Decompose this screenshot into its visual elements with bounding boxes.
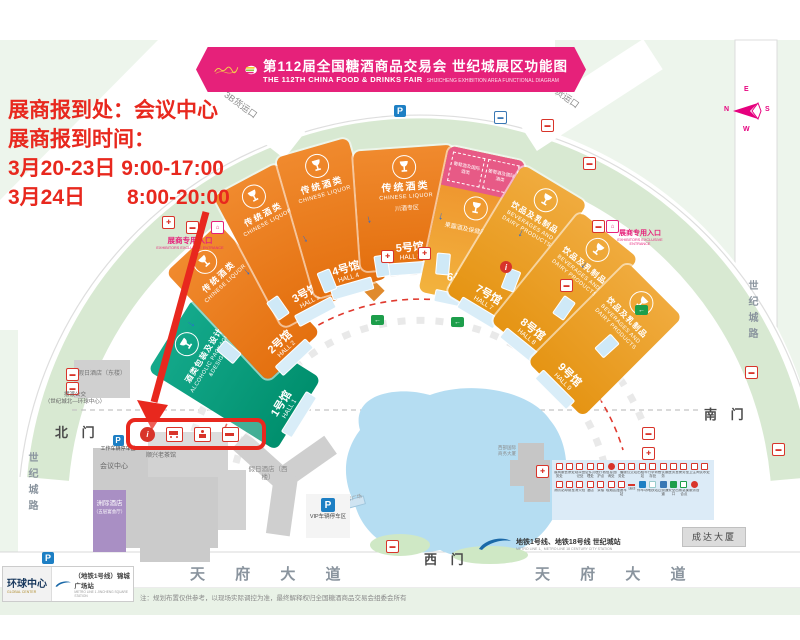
hall-connector: [435, 252, 451, 275]
legend-icon: [587, 463, 594, 470]
chengda-label: 成达大厦: [692, 532, 736, 542]
bus-stop-icon: ▬: [66, 368, 79, 381]
medical-icon: ✚: [381, 250, 394, 263]
legend-row-2: 消防站 母婴室 消火栓 酒店 茶楼 吸烟区 摆渡车站 围挡 停车场 地铁站: [554, 481, 712, 499]
wine-glass-icon: [462, 194, 490, 222]
legend-icon: [556, 481, 563, 488]
parking-icon: P: [42, 552, 54, 564]
legend-item: 展商服务处: [554, 463, 564, 479]
chengda-building: 成达大厦: [682, 527, 746, 547]
legend-label: 酒店: [585, 489, 596, 497]
legend-label: 医务室: [668, 471, 679, 479]
vip-parking: P VIP车辆停车区: [306, 494, 350, 538]
legend-item: 医疗救护点: [596, 463, 606, 479]
legend-label: 广播服务处: [616, 471, 627, 479]
banner-title-en: THE 112TH CHINA FOOD & DRINKS FAIR: [263, 75, 423, 84]
bus-stop-icon: ▬: [186, 221, 199, 234]
tianfu-avenue-label-right: 天 府 大 道: [535, 563, 699, 584]
legend-icon: [566, 463, 573, 470]
metro-logo-icon: [478, 536, 512, 552]
legend-label: 地铁站: [647, 489, 658, 497]
north-gate-label: 北 门: [55, 422, 100, 441]
title-banner: 第112届全国糖酒商品交易会 世纪城展区功能图 THE 112TH CHINA …: [196, 47, 586, 92]
metro-station-1-en: METRO LINE 1 JINCHENG SQUARE STATION: [74, 590, 130, 598]
legend-item: 餐饮服务: [658, 463, 668, 479]
legend-icon: [691, 463, 698, 470]
legend-item: 过街通道: [658, 481, 668, 497]
intercontinental-hotel-building: 洲际酒店 （五层宴会厅）: [93, 490, 126, 552]
compass-n: N: [724, 106, 729, 113]
legend-icon: [608, 463, 615, 470]
legend-icon: [639, 481, 646, 488]
banner-subtitle-en: SHIJICHENG EXHIBITION AREA FUNCTIONAL DI…: [427, 78, 559, 84]
bus-stop-icon: ▬: [592, 220, 605, 233]
legend-item: 证件办理处: [585, 463, 595, 479]
legend-label: 吸烟区: [606, 489, 617, 497]
legend-label: 服务台: [689, 489, 700, 497]
legend-label: 卫生间: [689, 471, 700, 479]
parking-icon: P: [394, 105, 406, 117]
legend-item: 观众登记处: [575, 463, 585, 479]
legend-item: 吸烟区: [606, 481, 616, 497]
legend-label: 医疗救护点: [595, 471, 606, 479]
west-gate-label: 西 门: [424, 549, 469, 568]
legend-item: 地铁站: [648, 481, 658, 497]
bus-stop-icon: ▬: [642, 427, 655, 440]
tianfu-avenue-label-left: 天 府 大 道: [190, 563, 354, 584]
legend-label: 售票处: [564, 471, 575, 479]
legend-item: 警务室: [679, 463, 689, 479]
legend-label: 观众登记处: [574, 471, 585, 479]
compass-rose: E N S W: [722, 86, 772, 136]
business-tower-c: [524, 482, 550, 502]
legend-label: 信息咨询处: [606, 471, 617, 479]
legend-item: 医务室: [668, 463, 678, 479]
legend-icon: [649, 481, 656, 488]
legend-icon: [628, 463, 635, 470]
legend-icon: [597, 463, 604, 470]
legend-label: 茶楼: [595, 489, 606, 497]
map-legend: 展商服务处 售票处 观众登记处 证件办理处 医疗救护点 信息咨询处 广播服务处 …: [552, 460, 714, 520]
legend-label: 消防站: [554, 489, 565, 497]
service-desk-icon: [222, 427, 239, 442]
conference-center-label: 会议中心: [100, 461, 128, 471]
legend-icon: [576, 481, 583, 488]
legend-icon: [576, 463, 583, 470]
legend-item: 消火栓: [575, 481, 585, 497]
legend-icon: [670, 481, 677, 488]
disclaimer-note: 注：规划布置仅供参考，以现场实际调控为准，最终解释权归全国糖酒商品交易会组委会所…: [140, 592, 407, 602]
metro-station-2-cn: 地铁1号线、地铁18号线 世纪城站: [516, 537, 621, 547]
metro-station-1-cn: （地铁1号线）锦城广场站: [74, 570, 130, 590]
legend-item: 母婴室: [564, 481, 574, 497]
legend-item: 安全出口: [668, 481, 678, 497]
exit-icon: ←: [451, 317, 464, 327]
intercontinental-label: 洲际酒店: [97, 500, 123, 507]
legend-icon: [618, 463, 625, 470]
annotation-line-2: 展商报到时间：: [8, 125, 308, 154]
bus-stop-icon: ▬: [386, 540, 399, 553]
intercontinental-sub-label: （五层宴会厅）: [94, 509, 126, 514]
legend-item: 卫生间: [689, 463, 699, 479]
bus-stop-icon: ▬: [560, 279, 573, 292]
bus-stop-icon: ▬: [745, 366, 758, 379]
legend-label: 母婴室: [564, 489, 575, 497]
legend-item: 摆渡车站: [616, 481, 626, 497]
legend-label: 警务室: [678, 471, 689, 479]
shijicheng-road-label-right: 世纪城路: [744, 280, 759, 344]
direction-arrow-icon: →: [435, 210, 447, 222]
teahouse-label: 顺兴老茶馆: [146, 450, 176, 459]
legend-icon: [680, 463, 687, 470]
wine-zone-box-1: 葡萄酒及国际酒类: [447, 151, 485, 187]
compass-w: W: [743, 126, 750, 133]
compass-s: S: [765, 106, 770, 113]
legend-icon: [670, 463, 677, 470]
badge-icon: [194, 427, 211, 442]
legend-label: 证件办理处: [585, 471, 596, 479]
compass-arrow-icon: [732, 99, 762, 123]
legend-item: 服务台: [689, 481, 699, 497]
banner-title: 第112届全国糖酒商品交易会 世纪城展区功能图: [263, 55, 568, 75]
legend-icon: [639, 463, 646, 470]
legend-item: 公交站: [627, 463, 637, 479]
legend-icon: [556, 463, 563, 470]
shuttle-icon: [166, 427, 183, 442]
annotation-line-4: 3月24日 8:00-20:00: [8, 183, 308, 212]
legend-label: 紧急集合点: [678, 489, 689, 497]
legend-label: 餐饮服务: [658, 471, 669, 479]
compass-e: E: [744, 86, 749, 93]
bus-stop-icon: ▬: [772, 443, 785, 456]
exhibitor-entrance-right: 展商专用入口 EXHIBITORS EXCLUSIVE ENTRANCE: [612, 228, 668, 246]
global-center-label-en: GLOBAL CENTER: [7, 590, 47, 594]
legend-icon: [618, 481, 625, 488]
bus-stop-icon: ▬: [541, 119, 554, 132]
legend-item: 行李寄存处: [648, 463, 658, 479]
legend-icon: [597, 481, 604, 488]
legend-label: 行李寄存处: [647, 471, 658, 479]
legend-label: 饮水处: [699, 471, 710, 479]
parking-icon: P: [113, 435, 124, 446]
exhibitor-entrance-left: 展商专用入口 EXHIBITORS EXCLUSIVE ENTRANCE: [150, 235, 230, 250]
annotation-line-3: 3月20-23日 9:00-17:00: [8, 154, 308, 183]
holiday-east-label: 假日酒店（东楼）: [78, 371, 126, 377]
legend-item: 酒店: [585, 481, 595, 497]
legend-label: 安全出口: [668, 489, 679, 497]
info-icon: i: [140, 427, 155, 442]
south-gate-label: 南 门: [704, 404, 749, 423]
fair-logo-icon: [245, 57, 257, 83]
legend-icon: [587, 481, 594, 488]
legend-icon: [566, 481, 573, 488]
legend-icon: [680, 481, 687, 488]
conference-step-building: [140, 548, 210, 562]
hall-5-zone: 川酒专区: [395, 204, 420, 214]
registration-highlight-box: i: [126, 418, 266, 450]
legend-label: 摆渡车站: [616, 489, 627, 497]
wine-glass-icon: [391, 154, 417, 180]
holiday-west-label: 假日酒店（西楼）: [246, 466, 290, 482]
annotation-line-1: 展商报到处：会议中心: [8, 96, 308, 125]
medical-icon: ✚: [162, 216, 175, 229]
calligraphy-logo: [214, 59, 239, 81]
legend-item: 信息咨询处: [606, 463, 616, 479]
legend-icon: [660, 481, 667, 488]
global-center-bar: 环球中心 GLOBAL CENTER （地铁1号线）锦城广场站 METRO LI…: [2, 566, 134, 602]
legend-item: 停车场: [637, 481, 647, 497]
medical-icon: ✚: [642, 447, 655, 460]
exit-icon: ←: [635, 305, 648, 315]
legend-icon: [701, 463, 708, 470]
legend-label: 公交站: [626, 471, 637, 479]
legend-icon: [691, 481, 698, 488]
legend-row-1: 展商服务处 售票处 观众登记处 证件办理处 医疗救护点 信息咨询处 广播服务处 …: [554, 463, 712, 481]
legend-label: 出租车站: [637, 471, 648, 479]
bus-shelter-icon: ▬: [494, 111, 507, 124]
legend-item: 售票处: [564, 463, 574, 479]
business-tower-label: 西部国际商务大厦: [496, 445, 518, 456]
legend-label: 停车场: [637, 489, 648, 497]
metro-logo-icon: [55, 578, 71, 590]
metro-station-2-en: METRO LINE 1、METRO LINE 18 CENTURY CITY …: [516, 547, 621, 552]
legend-icon: [649, 463, 656, 470]
registration-annotation: 展商报到处：会议中心 展商报到时间： 3月20-23日 9:00-17:00 3…: [8, 96, 308, 212]
entrance-icon: ⌂: [211, 221, 224, 234]
exit-icon: ←: [371, 315, 384, 325]
metro-station-2: 地铁1号线、地铁18号线 世纪城站 METRO LINE 1、METRO LIN…: [478, 536, 621, 552]
legend-label: 围挡: [626, 487, 637, 495]
venue-map-page: { "banner": { "title_cn": "第112届全国糖酒商品交易…: [0, 0, 800, 640]
legend-item: 消防站: [554, 481, 564, 497]
parking-icon: P: [321, 498, 335, 512]
legend-item: 围挡: [627, 481, 637, 497]
shijicheng-road-label-left: 世纪城路: [24, 452, 39, 516]
medical-icon: ✚: [418, 247, 431, 260]
legend-icon: [608, 481, 615, 488]
shuttle-bus-label: 摆渡公交（世纪城北—环球中心）: [42, 392, 108, 406]
legend-icon: [628, 484, 635, 486]
bus-stop-icon: ▬: [583, 157, 596, 170]
medical-icon: ✚: [536, 465, 549, 478]
legend-item: 茶楼: [596, 481, 606, 497]
info-icon: i: [500, 261, 512, 273]
legend-label: 展商服务处: [554, 471, 565, 479]
legend-label: 过街通道: [658, 489, 669, 497]
legend-icon: [660, 463, 667, 470]
legend-item: 出租车站: [637, 463, 647, 479]
global-center-label: 环球中心: [7, 575, 47, 590]
conference-annex-building: [218, 470, 246, 530]
legend-item: 紧急集合点: [679, 481, 689, 497]
legend-item: 饮水处: [699, 463, 709, 479]
legend-item: 广播服务处: [616, 463, 626, 479]
legend-label: 消火栓: [574, 489, 585, 497]
